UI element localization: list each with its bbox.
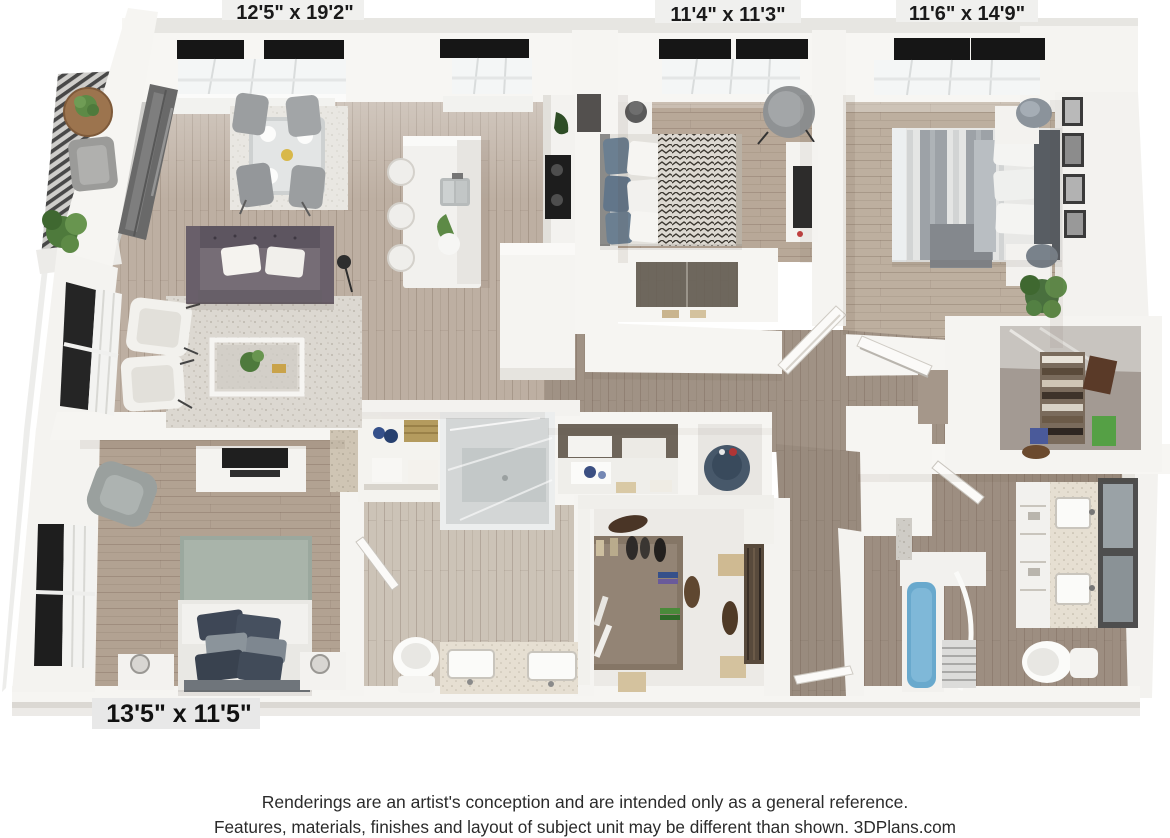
svg-text:Renderings are an artist's con: Renderings are an artist's conception an… (262, 792, 908, 812)
svg-text:11'4" x 11'3": 11'4" x 11'3" (670, 4, 785, 26)
svg-text:12'5" x 19'2": 12'5" x 19'2" (236, 2, 353, 24)
svg-text:11'6" x 14'9": 11'6" x 14'9" (909, 3, 1025, 25)
svg-text:13'5" x 11'5": 13'5" x 11'5" (106, 700, 251, 728)
svg-text:Features, materials, finishes: Features, materials, finishes and layout… (214, 817, 956, 837)
